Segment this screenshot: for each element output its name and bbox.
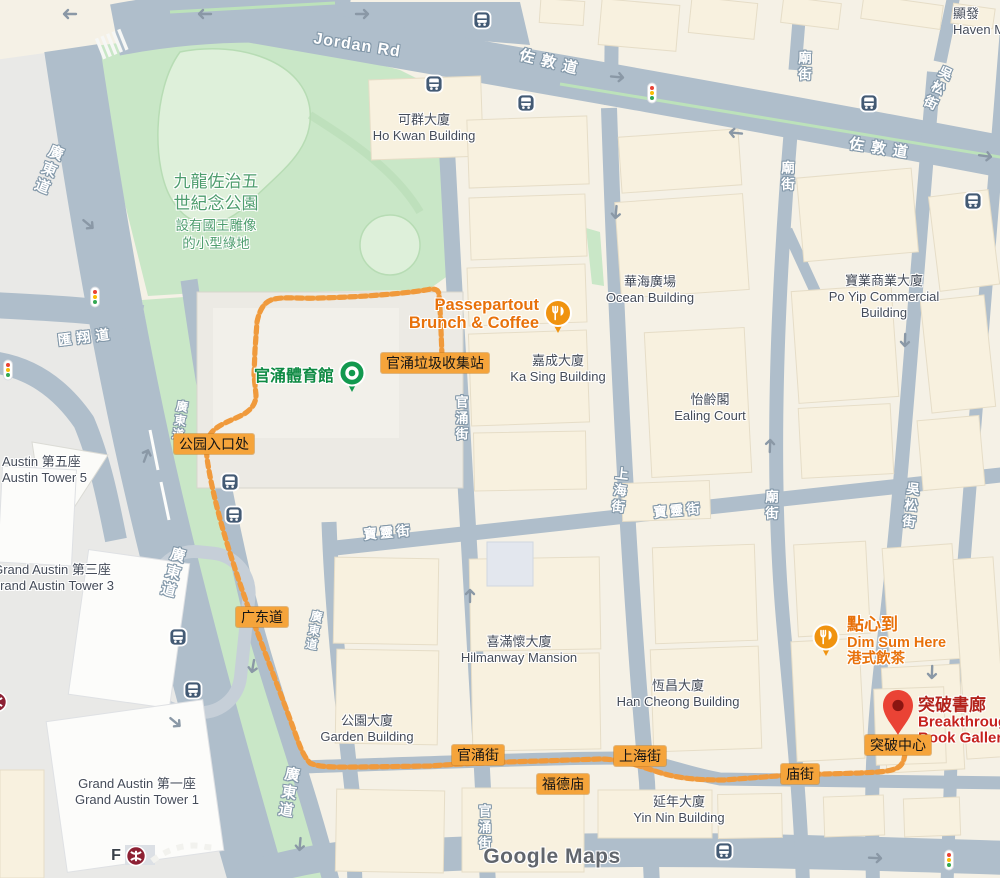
google-maps-canvas[interactable]: Jordan Rd 佐敦道 佐敦道 廣東道 廣東道 廣東道 廣東道 廣東道 匯翔…	[0, 0, 1000, 878]
wui-cheung-road	[0, 305, 142, 318]
restaurant-poi-icon-passepartout[interactable]	[545, 300, 571, 333]
destination-pin-icon[interactable]	[878, 688, 918, 740]
map-base	[0, 0, 1000, 878]
